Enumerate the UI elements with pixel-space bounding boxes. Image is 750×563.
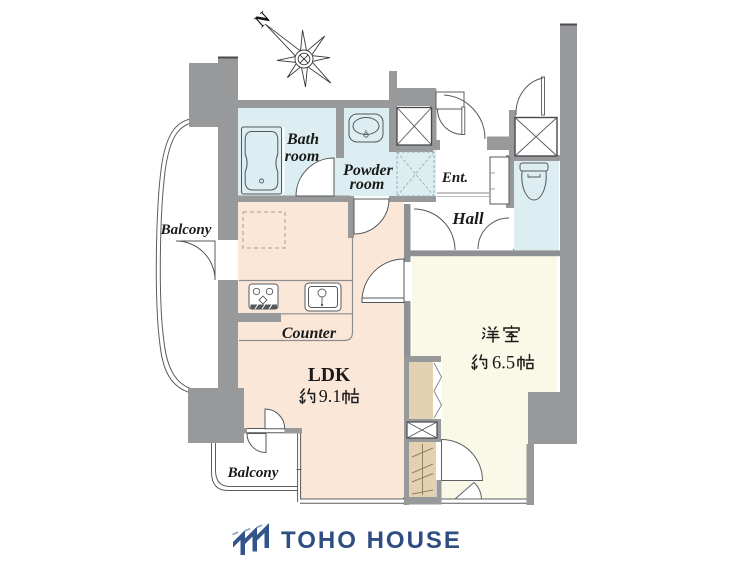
svg-text:room: room [285, 148, 320, 165]
svg-text:6.5: 6.5 [492, 354, 515, 374]
svg-text:Hall: Hall [451, 209, 483, 228]
svg-text:room: room [350, 176, 385, 193]
svg-text:Balcony: Balcony [160, 222, 212, 238]
svg-text:9.1: 9.1 [319, 386, 342, 406]
svg-text:Bath: Bath [286, 131, 319, 148]
svg-text:Balcony: Balcony [227, 465, 279, 481]
svg-text:LDK: LDK [308, 365, 351, 386]
svg-text:Ent.: Ent. [441, 170, 468, 186]
svg-text:TOHO HOUSE: TOHO HOUSE [281, 527, 462, 554]
svg-text:Counter: Counter [282, 325, 337, 342]
